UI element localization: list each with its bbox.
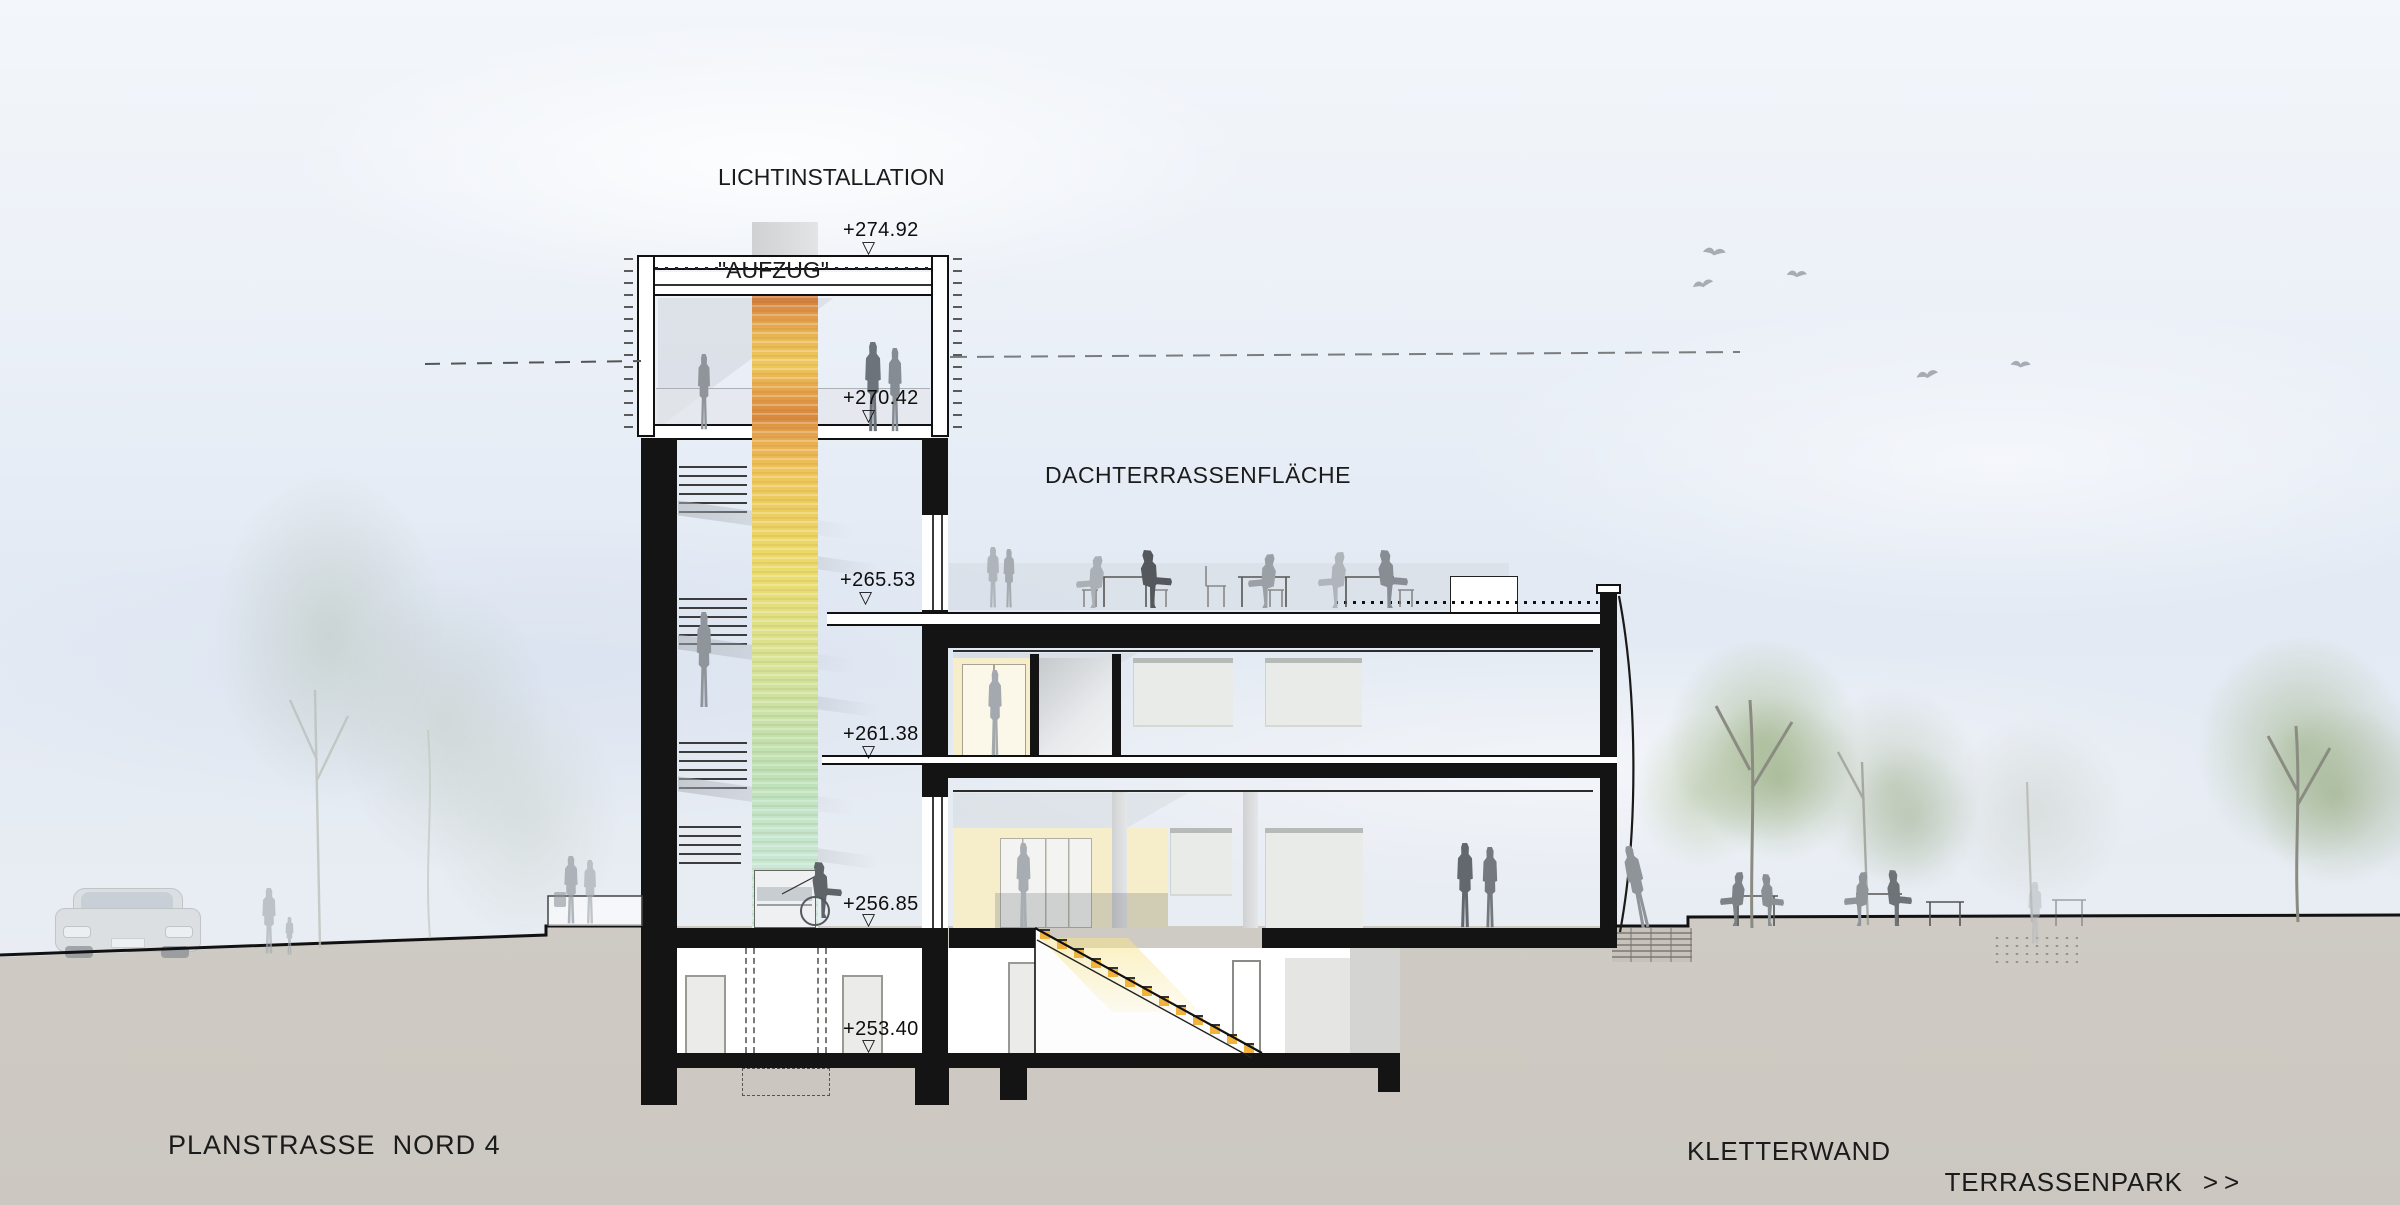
arrow-icons: >> [2203,1167,2245,1197]
terrace-park-text: TERRASSENPARK [1945,1167,2183,1197]
light-installation-label: LICHTINSTALLATION "AUFZUG" [718,100,945,348]
elevation-marker: +261.38 [843,723,919,746]
elevation-marker: +270.42 [843,387,919,410]
elevation-marker: +253.40 [843,1018,919,1041]
ground-line-left [0,926,643,955]
stair-hypotenuse [1035,928,1262,1053]
briefcase [554,892,566,907]
roof-terrace-label: DACHTERRASSENFLÄCHE [1045,462,1351,489]
pointer-line [782,876,816,894]
wheelchair-wheel [800,896,830,926]
label-line: "AUFZUG" [718,255,945,286]
elevation-triangle-icon: ▽ [862,408,875,425]
bird-icon [1692,245,2031,378]
terrace-park-label: TERRASSENPARK>> [1913,1136,2245,1205]
elevation-triangle-icon: ▽ [862,1038,875,1055]
section-drawing: +274.92 ▽ +270.42 ▽ +265.53 ▽ +261.38 ▽ … [0,0,2400,1205]
ground-line-right [1615,915,2400,926]
elevation-marker: +265.53 [840,569,916,592]
dashed-datum-line [950,352,1740,357]
elevation-triangle-icon: ▽ [862,912,875,929]
elevation-marker: +256.85 [843,893,919,916]
terrace-furniture [1082,566,1414,607]
stair-hypotenuse-inner [1037,940,1252,1058]
elevation-triangle-icon: ▽ [862,744,875,761]
street-label: PLANSTRASSE NORD 4 [168,1130,501,1161]
label-line: LICHTINSTALLATION [718,162,945,193]
linework [0,0,2400,1205]
elevation-triangle-icon: ▽ [859,590,872,607]
dashed-datum-line [425,361,641,364]
climbing-wall-label: KLETTERWAND [1687,1136,1891,1167]
